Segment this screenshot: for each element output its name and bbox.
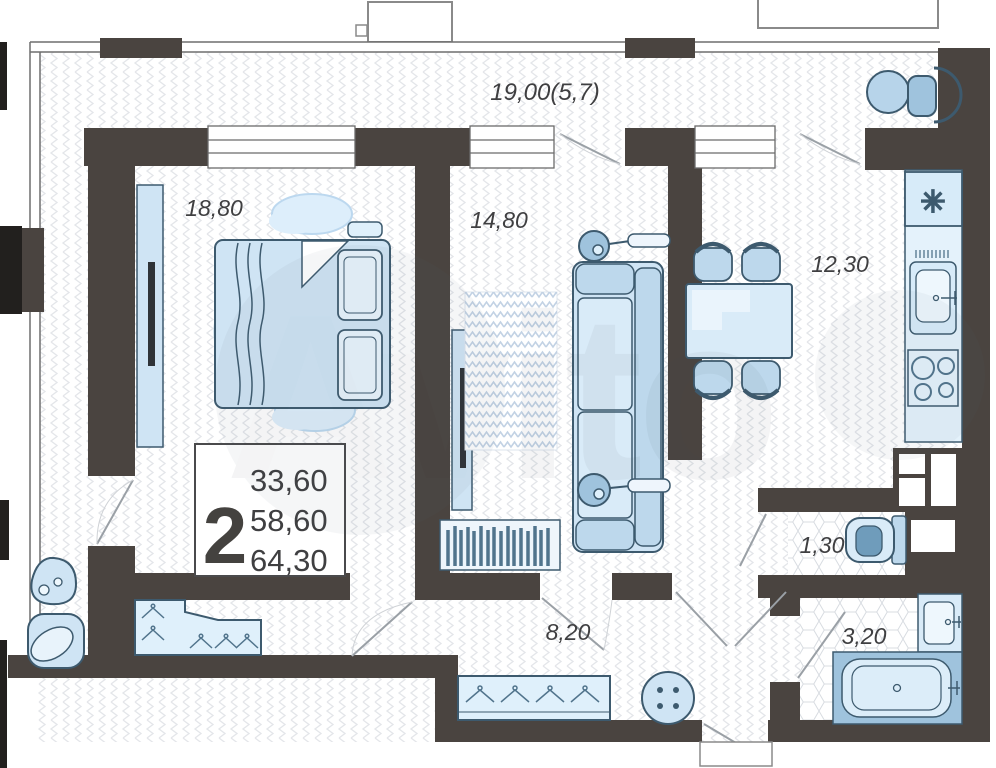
bedroom-window <box>208 126 355 168</box>
wall-segment <box>84 128 208 166</box>
hall-wardrobe <box>458 676 610 720</box>
edge-strip <box>0 640 7 768</box>
bedroom-tv-panel <box>137 185 163 447</box>
balcony-side-table <box>31 558 76 604</box>
edge-strip <box>0 500 9 560</box>
fridge: ✳ <box>905 172 962 226</box>
fluffy-rug <box>269 194 352 234</box>
neighbor-structure <box>758 0 938 28</box>
hallway-furniture <box>458 672 694 724</box>
balcony-area-label: 19,00(5,7) <box>490 79 599 106</box>
shaft-opening <box>899 478 925 506</box>
neighbor-structure <box>368 2 452 42</box>
living-room-window <box>470 126 554 168</box>
neighbor-structure-nub <box>356 25 367 36</box>
shaft-opening <box>911 520 955 552</box>
fridge-snowflake-icon: ✳ <box>920 185 945 220</box>
living-area-label: 14,80 <box>470 207 528 233</box>
wall-segment <box>770 598 800 616</box>
wall-segment <box>758 488 908 512</box>
bathtub <box>833 652 962 724</box>
balcony-armchair <box>25 614 84 668</box>
hallway-area-label: 8,20 <box>546 619 591 645</box>
edge-strip <box>0 42 7 110</box>
wall-segment <box>22 228 44 312</box>
watermark-text: Avito <box>226 265 775 528</box>
wall-segment <box>435 655 458 742</box>
watermark-circle <box>815 290 985 460</box>
nightstand <box>348 222 382 237</box>
bedroom-area-label: 18,80 <box>185 195 243 221</box>
wall-segment <box>100 38 182 58</box>
wall-segment <box>625 38 695 58</box>
stat-line: 64,30 <box>250 543 328 578</box>
wall-segment <box>88 546 135 655</box>
wc-area-label: 1,30 <box>800 532 845 558</box>
tv-icon <box>148 262 155 366</box>
toilet <box>846 516 906 564</box>
washbasin <box>918 594 962 652</box>
wall-segment <box>612 573 672 600</box>
floor-plan-svg: ✳ <box>0 0 996 768</box>
shaft-opening <box>931 454 956 506</box>
floor-plan-page: ✳ <box>0 0 996 768</box>
edge-strip <box>0 226 22 314</box>
pouf <box>642 672 694 724</box>
kitchen-area-label: 12,30 <box>811 251 869 277</box>
exterior-structures <box>356 0 938 42</box>
entrance-step <box>700 742 772 766</box>
balcony-table <box>867 71 909 113</box>
kitchen-window <box>695 126 775 168</box>
wall-segment <box>770 682 800 720</box>
wall-segment <box>88 166 135 476</box>
bathroom-area-label: 3,20 <box>842 623 887 649</box>
wall-segment <box>415 573 540 600</box>
wall-segment <box>625 128 695 166</box>
wall-segment <box>352 128 470 166</box>
